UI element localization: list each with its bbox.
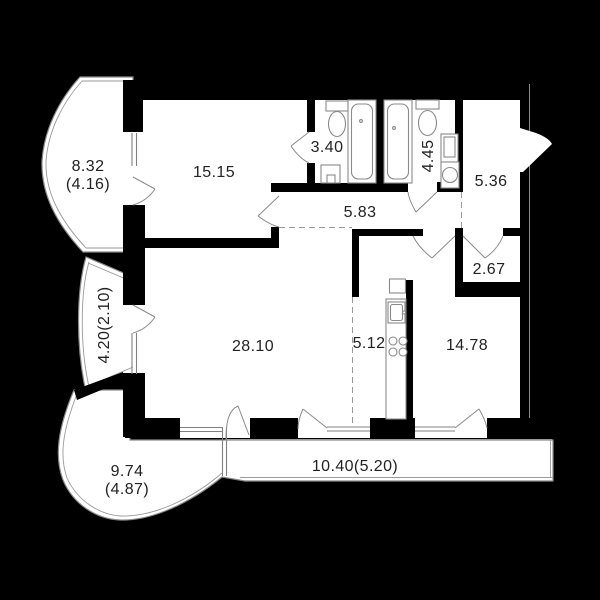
label-kitchen: 5.12: [353, 335, 386, 352]
label-room-second: 14.78: [446, 337, 488, 354]
toilet-bowl-icon: [329, 112, 346, 137]
apartment-floor: [123, 82, 532, 438]
label-bedroom: 15.15: [193, 164, 235, 181]
toilet-tank-icon: [326, 101, 348, 111]
label-balcony-bottom: 10.40(5.20): [312, 458, 398, 475]
bathtub2-inner-icon: [388, 104, 409, 179]
toilet2-tank-icon: [416, 100, 439, 109]
wall-bathrooms-bottom: [271, 183, 408, 192]
label-balcony-top-left: 8.32: [72, 158, 105, 175]
wall-left-upper: [123, 80, 143, 132]
washing-machine-drum-icon: [443, 168, 458, 183]
wall-corridor-west-stub: [271, 227, 279, 248]
label-hallway: 5.36: [475, 173, 508, 190]
stove-burner-icon: [389, 348, 397, 356]
label-balcony-left: 4.20(2.10): [96, 287, 113, 364]
kitchen-sink-basin-icon: [391, 305, 403, 321]
wall-bottom-right-block: [487, 418, 558, 438]
label-bathroom-small: 3.40: [311, 139, 344, 156]
vent-shaft-icon: [390, 279, 406, 293]
wall-bottom-seg3: [370, 418, 415, 440]
wall-bottom-seg1: [125, 418, 180, 438]
floor-plan-canvas: 8.32 (4.16) 15.15 3.40 4.45 5.36 5.83 2.…: [0, 0, 600, 600]
wall-storage-top-stub: [503, 228, 520, 236]
bathtub2-drain-icon: [393, 127, 396, 130]
label-corridor: 5.83: [344, 204, 377, 221]
label-living-room: 28.10: [232, 338, 274, 355]
stove-burner-icon: [389, 337, 397, 345]
sink-basin-icon: [444, 137, 455, 157]
wall-bedroom-bottom: [142, 238, 279, 248]
wall-top: [143, 82, 532, 100]
wall-left-middle: [123, 205, 145, 305]
wall-kitchen-left: [352, 229, 359, 297]
bathtub1-inner-icon: [352, 104, 373, 179]
wall-bath1-bath2-divider: [376, 100, 384, 183]
wall-bath1-left-upper: [307, 98, 315, 132]
label-bathroom-large: 4.45: [420, 140, 437, 173]
wall-kitchen-top-stub: [352, 229, 423, 236]
kitchen-fixtures: [386, 279, 407, 419]
bathtub1-drain-icon: [360, 120, 363, 123]
floor-plan-svg: 8.32 (4.16) 15.15 3.40 4.45 5.36 5.83 2.…: [0, 0, 600, 600]
toilet2-bowl-icon: [419, 111, 437, 136]
kitchen-faucet-icon: [403, 311, 406, 314]
label-balcony-bottom-left-reduced: (4.87): [105, 481, 149, 498]
label-balcony-bottom-left: 9.74: [111, 463, 144, 480]
stove-burner-icon: [399, 337, 407, 345]
label-balcony-top-left-reduced: (4.16): [66, 176, 110, 193]
wall-storage-bottom: [455, 282, 532, 297]
stove-burner-icon: [399, 348, 407, 356]
wall-bottom-seg2: [250, 418, 298, 438]
label-storage: 2.67: [473, 261, 506, 278]
shower-drain-icon: [327, 175, 335, 183]
